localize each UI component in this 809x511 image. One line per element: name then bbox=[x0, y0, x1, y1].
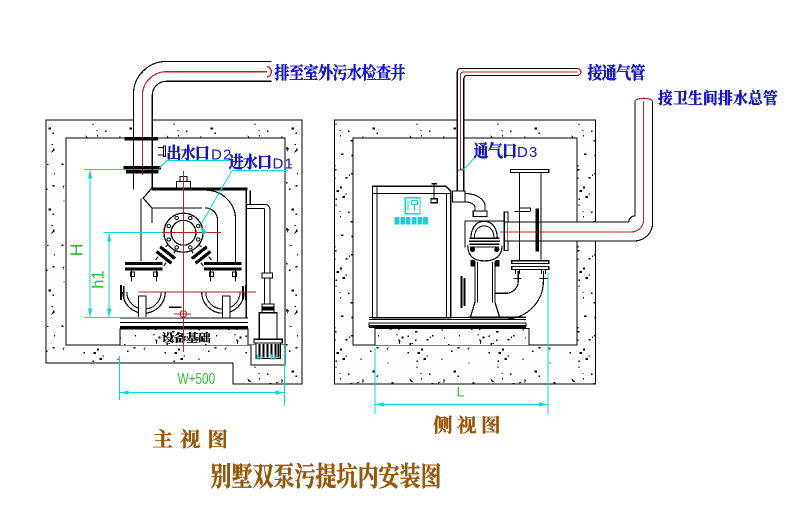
svg-text:D2: D2 bbox=[211, 147, 233, 164]
svg-text:D3: D3 bbox=[517, 144, 539, 161]
svg-text:L: L bbox=[457, 384, 465, 400]
svg-text:D1: D1 bbox=[273, 156, 295, 173]
svg-text:h1: h1 bbox=[90, 270, 108, 288]
svg-text:W+500: W+500 bbox=[178, 370, 216, 387]
svg-text:H: H bbox=[67, 244, 87, 257]
